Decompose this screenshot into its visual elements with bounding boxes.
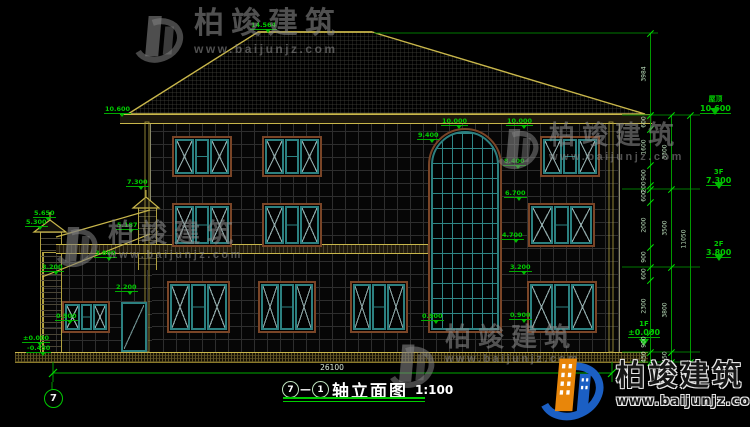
brand-block: 柏竣建筑 www.baijunjz.com — [532, 352, 750, 422]
cad-elevation-drawing: 14.56410.60010.00010.0009.4008.4007.3006… — [0, 0, 750, 427]
window — [262, 136, 322, 177]
window — [528, 203, 595, 247]
watermark-logo-icon — [130, 8, 186, 66]
elevation-marker: 0.900 — [421, 313, 444, 321]
dim-value: 900 — [641, 251, 648, 262]
elevation-marker: 3.200 — [509, 264, 532, 272]
elevation-marker: 10.000 — [441, 118, 468, 126]
dim-value: 600 — [641, 190, 648, 201]
watermark-text: 柏竣建筑 — [549, 122, 684, 149]
elevation-marker: 0.900 — [55, 313, 78, 321]
floor-level-flag: 3F7.300 — [706, 168, 731, 186]
elevation-marker: 7.300 — [126, 179, 149, 187]
dim-value: 3984 — [641, 66, 648, 81]
window — [258, 281, 316, 333]
axis-range-dash: — — [300, 383, 311, 396]
axis-bubble-start: 7 — [282, 381, 299, 398]
watermark-text: 柏竣建筑 — [194, 8, 342, 40]
level-triangle-icon — [714, 182, 724, 194]
floor-level-flag: 屋顶10.600 — [700, 94, 731, 114]
watermark-text: 柏竣建筑 — [445, 324, 580, 351]
watermark-url: www.baijunjz.com — [549, 151, 684, 163]
overall-width-dim: 26100 — [300, 363, 364, 372]
dim-value: 11050 — [681, 229, 688, 248]
level-name: 1F — [628, 320, 660, 328]
watermark-logo-icon — [52, 220, 100, 270]
brand-logo-icon — [532, 352, 610, 422]
elevation-marker: 4.700 — [501, 232, 524, 240]
level-name: 2F — [706, 240, 731, 248]
title-underline — [283, 397, 425, 399]
axis-grid-bubble: 7 — [44, 389, 63, 408]
elevation-marker: 6.700 — [504, 190, 527, 198]
dim-chain-line — [650, 33, 651, 115]
brand-url: www.baijunjz.com — [616, 394, 750, 409]
dim-value: 2000 — [641, 217, 648, 232]
entry-door — [121, 302, 147, 352]
elevation-marker: -0.450 — [26, 345, 51, 353]
window — [172, 136, 232, 177]
watermark-right: 柏竣建筑 www.baijunjz.com — [493, 122, 684, 172]
watermark-top: 柏竣建筑 www.baijunjz.com — [130, 8, 342, 66]
level-name: 3F — [706, 168, 731, 176]
watermark-logo-icon — [493, 122, 541, 172]
axis-bubble-end: 1 — [312, 381, 329, 398]
brand-name: 柏竣建筑 — [616, 352, 750, 394]
dim-value: 2300 — [641, 298, 648, 313]
dim-value: 600 — [641, 268, 648, 279]
elevation-marker: 2.200 — [115, 284, 138, 292]
elevation-marker: ±0.000 — [22, 335, 50, 343]
level-name: 屋顶 — [700, 94, 731, 104]
watermark-url: www.baijunjz.com — [108, 249, 243, 261]
elevation-marker: 9.400 — [417, 132, 440, 140]
elevation-marker: 0.900 — [509, 312, 532, 320]
level-triangle-icon — [714, 254, 724, 266]
dim-value: 3800 — [662, 302, 669, 317]
elevation-marker: 5.300 — [25, 219, 48, 227]
watermark-text: 柏竣建筑 — [108, 220, 243, 247]
dim-value: 900 — [641, 336, 648, 347]
dim-value: 3500 — [662, 220, 669, 235]
pilaster-cap — [133, 197, 159, 208]
elevation-marker: 5.650 — [33, 210, 56, 218]
window — [167, 281, 230, 333]
elevation-marker: 10.600 — [104, 106, 131, 114]
title-underline-2 — [283, 401, 425, 402]
dim-chain-line — [690, 115, 691, 362]
level-triangle-icon — [710, 108, 720, 120]
watermark-mid-left: 柏竣建筑 www.baijunjz.com — [52, 220, 243, 270]
drawing-scale: 1:100 — [415, 383, 453, 397]
arched-stair-window — [428, 128, 502, 333]
watermark-url: www.baijunjz.com — [194, 42, 342, 56]
window — [262, 203, 322, 247]
floor-level-flag: 2F3.800 — [706, 240, 731, 258]
